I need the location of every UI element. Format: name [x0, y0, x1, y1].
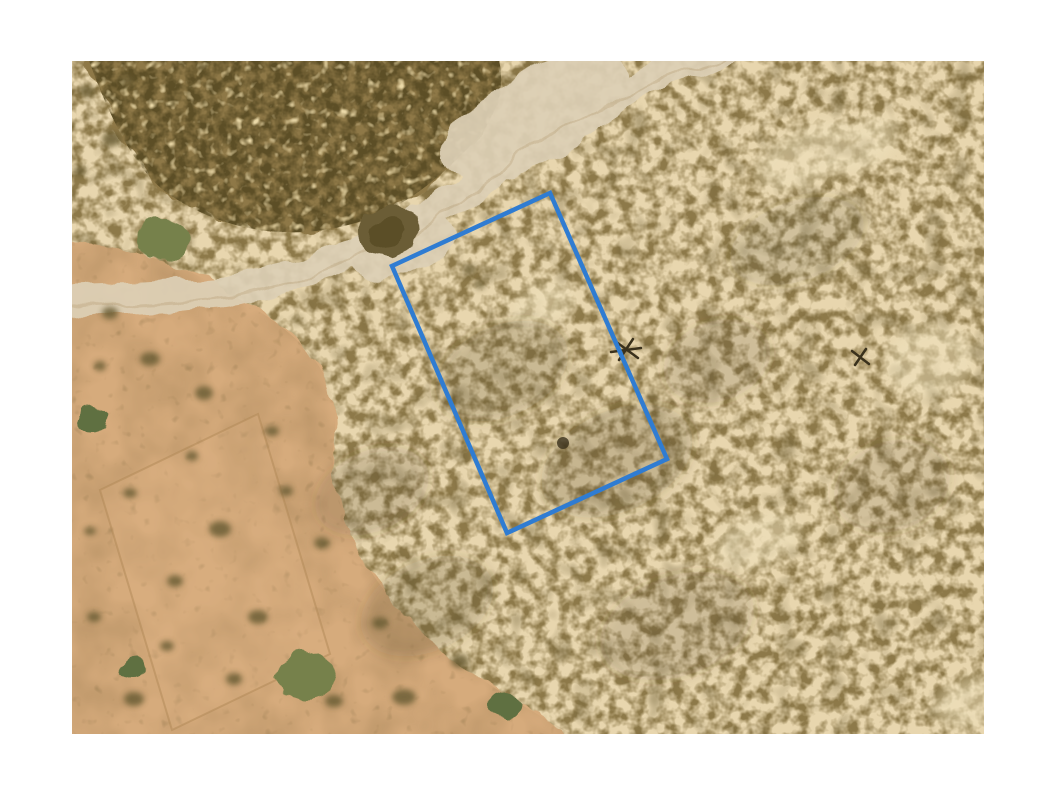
- satellite-image[interactable]: [72, 61, 984, 734]
- page-background: [0, 0, 1055, 791]
- large-bush: [358, 207, 418, 255]
- satellite-image-frame: [72, 61, 984, 734]
